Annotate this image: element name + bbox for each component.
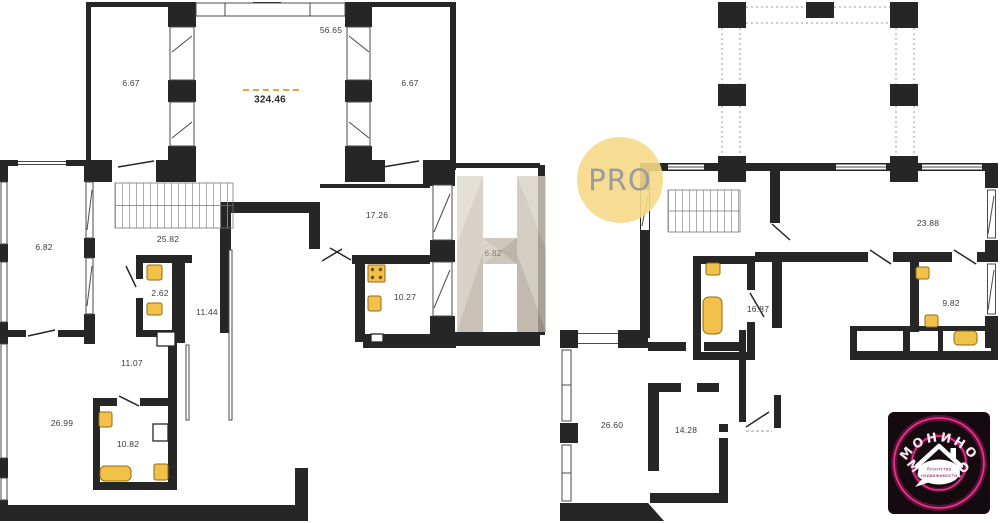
logo-tagline-2: недвижимости [921,474,957,479]
sink-icon [368,296,381,311]
total-area-label: 324.46 [254,95,286,106]
area-label-wc: 2.62 [151,288,168,298]
bathtub-icon [954,331,977,345]
area-label-room-2699: 26.99 [51,418,73,428]
area-label-bathroom: 10.82 [117,439,139,449]
area-label-room-1428: 14.28 [675,425,697,435]
area-label-room-1687: 16.87 [747,304,769,314]
area-label-hall-top: 56.65 [320,25,342,35]
stairs-left [115,183,233,228]
area-label-corridor: 11.44 [196,307,218,317]
area-label-room-2660: 26.60 [601,420,623,430]
agency-logo: МОНИНО МОНИНО Агентство недвижимости [888,412,990,514]
floorplan-canvas: 6.67 56.65 324.46 6.67 6.82 25.82 2.62 1… [0,0,1000,523]
bathtub-icon [703,297,722,334]
floorplan-drawing [0,0,1000,523]
total-area-underline [243,89,299,91]
bathtub-icon [100,466,131,481]
area-label-room-682-left: 6.82 [35,242,52,252]
pro-watermark: PRO [577,137,663,223]
stairs-right [668,190,740,232]
logo-tagline-1: Агентство [927,467,952,473]
area-label-room-2388: 23.88 [917,218,939,228]
terrace-guides [722,7,914,156]
area-label-kitchen: 10.27 [394,292,416,302]
stove-icon [368,265,385,282]
area-label-balcony-right: 6.67 [401,78,418,88]
area-label-balcony-left: 6.67 [122,78,139,88]
area-label-room-1107: 11.07 [121,358,143,368]
pro-watermark-label: PRO [588,163,651,197]
area-label-stairs: 25.82 [157,234,179,244]
area-label-room-982: 9.82 [942,298,959,308]
area-label-room-682-right: 6.82 [484,248,501,258]
area-label-room-1726: 17.26 [366,210,388,220]
left-plan-fixtures [99,265,385,481]
